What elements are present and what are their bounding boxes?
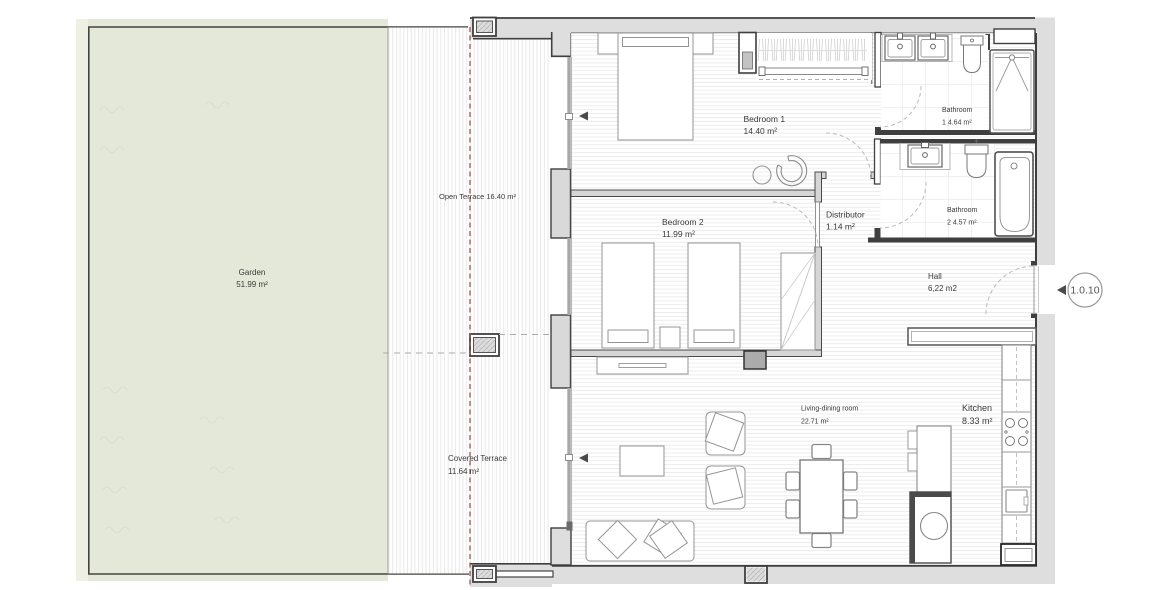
svg-text:Kitchen: Kitchen xyxy=(962,403,992,413)
svg-text:Bathroom: Bathroom xyxy=(947,207,978,214)
svg-text:22.71 m²: 22.71 m² xyxy=(801,419,829,426)
svg-text:11.99 m²: 11.99 m² xyxy=(662,229,695,239)
svg-text:Bedroom 2: Bedroom 2 xyxy=(662,217,704,227)
svg-text:Bathroom: Bathroom xyxy=(942,107,973,114)
svg-text:1.0.10: 1.0.10 xyxy=(1070,285,1099,297)
svg-text:2 4.57 m²: 2 4.57 m² xyxy=(947,220,977,227)
svg-text:11.64 m²: 11.64 m² xyxy=(448,467,479,476)
svg-text:8.33 m²: 8.33 m² xyxy=(962,416,993,426)
svg-text:Open Terrace 16.40 m²: Open Terrace 16.40 m² xyxy=(439,192,516,201)
svg-text:Covered Terrace: Covered Terrace xyxy=(448,454,508,463)
svg-text:14.40 m²: 14.40 m² xyxy=(744,126,778,136)
svg-text:1.14 m²: 1.14 m² xyxy=(826,222,855,232)
svg-text:Hall: Hall xyxy=(928,272,942,281)
svg-text:Living-dining room: Living-dining room xyxy=(801,406,858,413)
svg-text:51.99 m²: 51.99 m² xyxy=(236,280,268,289)
svg-text:Bedroom 1: Bedroom 1 xyxy=(744,114,786,124)
svg-text:6,22 m2: 6,22 m2 xyxy=(928,284,957,293)
svg-text:Garden: Garden xyxy=(239,268,266,277)
svg-text:Distributor: Distributor xyxy=(826,210,865,220)
svg-text:1 4.64 m²: 1 4.64 m² xyxy=(942,120,972,127)
